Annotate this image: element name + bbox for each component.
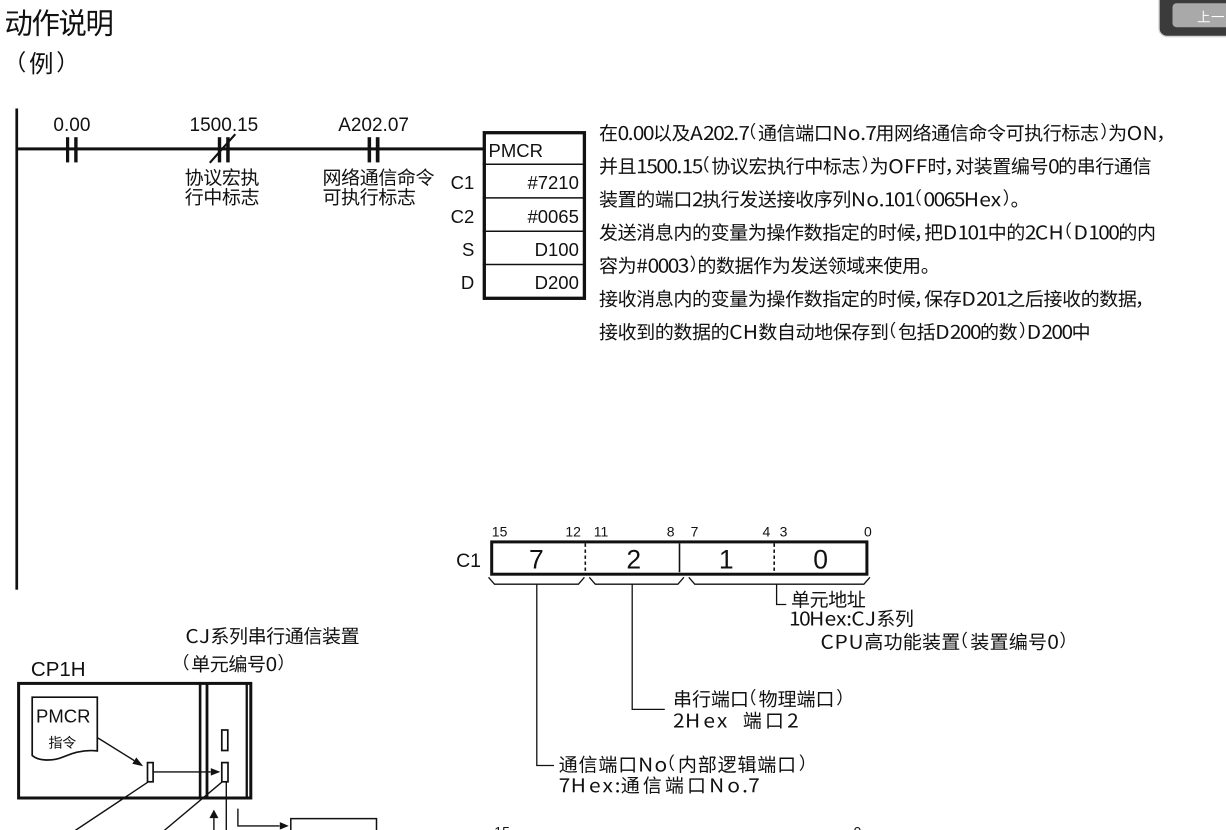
svg-text:C1: C1 (451, 172, 475, 193)
svg-text:0: 0 (864, 524, 872, 540)
svg-text:D: D (461, 272, 474, 293)
svg-text:1: 1 (719, 544, 734, 574)
svg-text:#7210: #7210 (527, 172, 578, 193)
svg-text:C2: C2 (451, 206, 475, 227)
svg-text:CP1H: CP1H (31, 658, 86, 681)
svg-text:#0065: #0065 (527, 206, 578, 227)
svg-text:2: 2 (626, 544, 641, 574)
svg-text:11: 11 (594, 524, 609, 540)
svg-text:4: 4 (763, 524, 771, 540)
svg-text:S: S (462, 239, 474, 260)
svg-text:0.00: 0.00 (53, 115, 90, 136)
svg-text:7: 7 (691, 524, 699, 540)
svg-text:7: 7 (529, 544, 544, 574)
svg-text:0: 0 (813, 544, 828, 574)
svg-text:0: 0 (854, 824, 862, 830)
svg-text:A202.07: A202.07 (338, 115, 409, 136)
svg-text:8: 8 (667, 524, 675, 540)
svg-text:PMCR: PMCR (489, 140, 543, 161)
svg-text:15: 15 (494, 824, 510, 830)
svg-text:D200: D200 (535, 272, 579, 293)
svg-text:15: 15 (492, 524, 508, 540)
svg-text:PMCR: PMCR (36, 706, 90, 727)
svg-text:C1: C1 (456, 550, 481, 572)
svg-text:12: 12 (565, 524, 581, 540)
svg-text:D100: D100 (535, 239, 579, 260)
svg-text:1500.15: 1500.15 (190, 115, 259, 136)
svg-text:3: 3 (780, 524, 788, 540)
